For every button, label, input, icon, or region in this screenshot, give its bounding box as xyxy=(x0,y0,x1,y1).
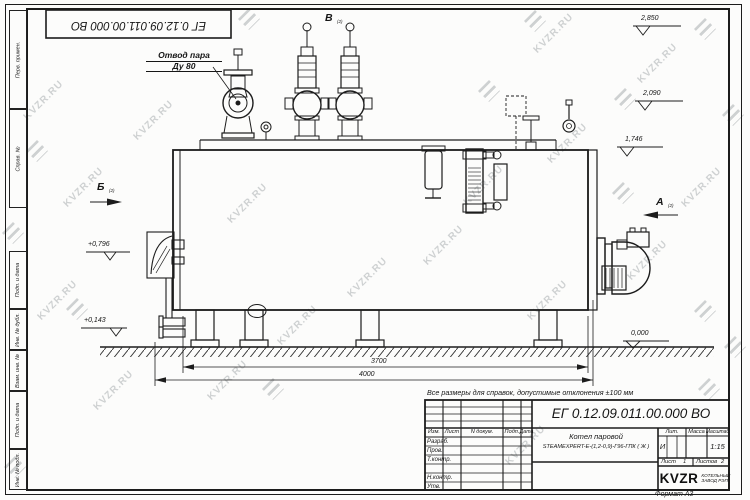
burner xyxy=(597,228,650,294)
kvzr-logo-sub2: ЗАВОД РЭП xyxy=(701,478,727,483)
tb-row-prov: Пров. xyxy=(427,448,443,454)
tb-col-data: Дата xyxy=(521,429,532,437)
tb-row-nkontr: Н.контр. xyxy=(427,475,452,481)
tb-list-value: 1 xyxy=(683,460,686,466)
tb-masshtab-label: Масштаб xyxy=(707,429,728,436)
view-ref-a: (2) xyxy=(668,204,674,209)
format-label: Формат А3 xyxy=(655,491,693,498)
margin-cell-podp-data: Подп. и дата xyxy=(9,251,27,309)
margin-cell-inv-dubl: Инв. № дубл. xyxy=(9,309,27,350)
tb-product-name: Котел паровой xyxy=(534,431,658,442)
front-bracket xyxy=(147,232,185,338)
tb-product-model: STEAMEXPERT-Е-(1,2-0,9)-Г96-ГПК ( Ж ) xyxy=(532,443,660,452)
lifting-eye xyxy=(261,122,271,140)
tb-row-utv: Утв. xyxy=(427,484,441,490)
drawing-sheet: KVZR.RU KVZR.RU KVZR.RU KVZR.RU KVZR.RU … xyxy=(0,0,750,500)
view-ref-v: (2) xyxy=(337,20,343,25)
support-feet xyxy=(191,310,562,347)
callout-line2: Ду 80 xyxy=(146,62,222,73)
tb-listov-value: 2 xyxy=(721,460,724,466)
elevation-marks xyxy=(81,26,683,348)
tb-col-list: Лист xyxy=(443,429,461,437)
tb-col-izm: Изм. xyxy=(425,429,443,437)
level-2090: 2,090 xyxy=(643,90,661,97)
ground-line xyxy=(100,347,714,357)
margin-cell-inv-podl: Инв. № подл. xyxy=(9,449,27,490)
view-label-b: Б xyxy=(97,182,104,193)
view-ref-b: (2) xyxy=(109,189,115,194)
steam-outlet-callout: Отвод пара Ду 80 xyxy=(146,51,222,72)
callout-line1: Отвод пара xyxy=(146,51,222,62)
margin-cell-podp-data2: Подп. и дата xyxy=(9,391,27,449)
dim-3700: 3700 xyxy=(371,358,387,365)
tb-logo: KVZR КОТЕЛЬНЫЙ ЗАВОД РЭП xyxy=(659,467,728,489)
margin-cell-sprav-no: Справ. № xyxy=(9,109,27,208)
tolerance-note: Все размеры для справок, допустимые откл… xyxy=(427,389,633,396)
tb-col-podp: Подп. xyxy=(503,429,521,437)
level-0796: +0,796 xyxy=(88,241,110,248)
dim-4000: 4000 xyxy=(359,371,375,378)
tb-designation: ЕГ 0.12.09.011.00.000 ВО xyxy=(534,402,728,426)
tb-list-label: Лист xyxy=(661,460,676,466)
tb-lit-label: Лит. xyxy=(658,429,686,436)
boiler-shell xyxy=(173,140,597,318)
corner-stamp: ЕГ 0.12.09.011.00.000 ВО xyxy=(46,10,231,38)
tb-listov-label: Листов xyxy=(696,460,717,466)
tb-scale-value: 1:15 xyxy=(707,438,728,456)
tb-col-ndoc: N докум. xyxy=(461,429,503,437)
level-2850: 2,850 xyxy=(641,15,659,22)
top-fittings xyxy=(506,96,575,150)
margin-cell-perv-primen: Перв. примен. xyxy=(9,10,27,109)
margin-cell-vzam-inv: Взам. инв. № xyxy=(9,350,27,391)
level-0000: 0,000 xyxy=(631,330,649,337)
level-0143: +0,143 xyxy=(84,317,106,324)
view-arrow-a xyxy=(643,212,678,219)
tb-lit-value: И xyxy=(658,438,667,456)
level-gauge xyxy=(422,146,507,213)
safety-valve xyxy=(285,23,329,140)
view-arrow-b xyxy=(90,199,122,206)
kvzr-logo-subtext: КОТЕЛЬНЫЙ ЗАВОД РЭП xyxy=(701,473,730,484)
tb-row-tkontr: Т.контр. xyxy=(427,457,451,463)
safety-valve xyxy=(328,23,372,140)
kvzr-logo-text: KVZR xyxy=(660,471,699,486)
view-label-a: А xyxy=(656,197,664,208)
tb-row-razrab: Разраб. xyxy=(427,439,449,445)
level-1746: 1,746 xyxy=(625,136,643,143)
tb-massa-label: Масса xyxy=(686,429,707,436)
view-label-v: В xyxy=(325,13,333,24)
kvzr-logo-sub1: КОТЕЛЬНЫЙ xyxy=(701,473,730,478)
